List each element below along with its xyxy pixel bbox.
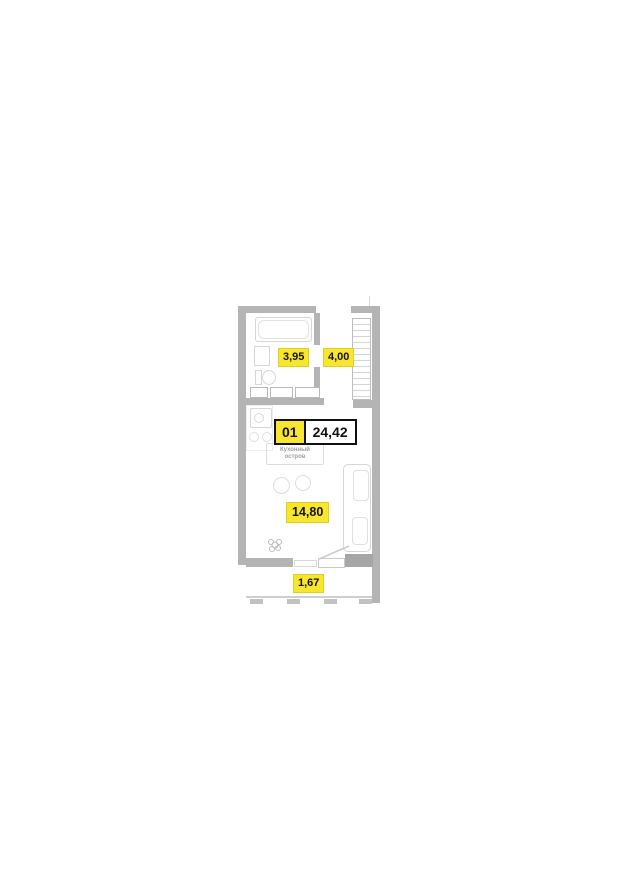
closet-cell bbox=[295, 387, 320, 398]
railing-post bbox=[250, 599, 263, 604]
closet-cell bbox=[250, 387, 268, 398]
wall-top bbox=[246, 306, 316, 313]
area-label-living-room: 14,80 bbox=[286, 502, 329, 523]
balcony-railing bbox=[246, 596, 372, 598]
kitchen-sink bbox=[250, 408, 272, 428]
wall-bottom-left bbox=[246, 558, 293, 567]
area-label-balcony: 1,67 bbox=[293, 574, 324, 593]
stool bbox=[273, 477, 290, 494]
wall-bathroom-lower bbox=[314, 367, 320, 387]
closet-cells bbox=[250, 387, 320, 398]
plant-icon bbox=[266, 536, 284, 554]
wall-right bbox=[372, 306, 380, 603]
wall-kitchen-top bbox=[246, 398, 324, 405]
axis-line bbox=[369, 296, 370, 306]
unit-total-area: 24,42 bbox=[306, 421, 355, 443]
bathtub bbox=[255, 317, 312, 342]
page: Кухонный остров bbox=[0, 0, 623, 880]
kitchen-sink-basin bbox=[254, 413, 264, 423]
wall-bathroom-upper bbox=[314, 313, 320, 345]
railing-post bbox=[287, 599, 300, 604]
wall-bottom-right bbox=[345, 554, 373, 567]
unit-number: 01 bbox=[276, 421, 306, 443]
railing-post bbox=[324, 599, 337, 604]
sofa bbox=[343, 464, 371, 552]
bathroom-sink bbox=[254, 346, 270, 366]
balcony-door-leaf bbox=[318, 558, 345, 568]
stool bbox=[295, 475, 311, 491]
wall-left bbox=[238, 306, 246, 565]
wall-wardrobe-bottom bbox=[353, 400, 374, 408]
unit-badge: 01 24,42 bbox=[274, 419, 357, 445]
bathtub-inner bbox=[258, 320, 309, 339]
kitchen-island-label: Кухонный остров bbox=[269, 447, 321, 461]
sofa-pillow bbox=[353, 470, 369, 501]
toilet-bowl bbox=[262, 370, 276, 385]
area-label-hallway: 4,00 bbox=[323, 348, 354, 367]
balcony-door-threshold bbox=[294, 560, 317, 567]
cooktop-burner bbox=[262, 432, 272, 442]
wardrobe-shelves bbox=[352, 318, 371, 400]
sofa-pillow bbox=[352, 517, 368, 545]
railing-post bbox=[359, 599, 372, 604]
toilet-tank bbox=[255, 370, 262, 385]
floor-plan: Кухонный остров bbox=[238, 296, 380, 604]
closet-cell bbox=[270, 387, 293, 398]
cooktop-burner bbox=[249, 432, 259, 442]
area-label-bathroom: 3,95 bbox=[278, 348, 309, 367]
